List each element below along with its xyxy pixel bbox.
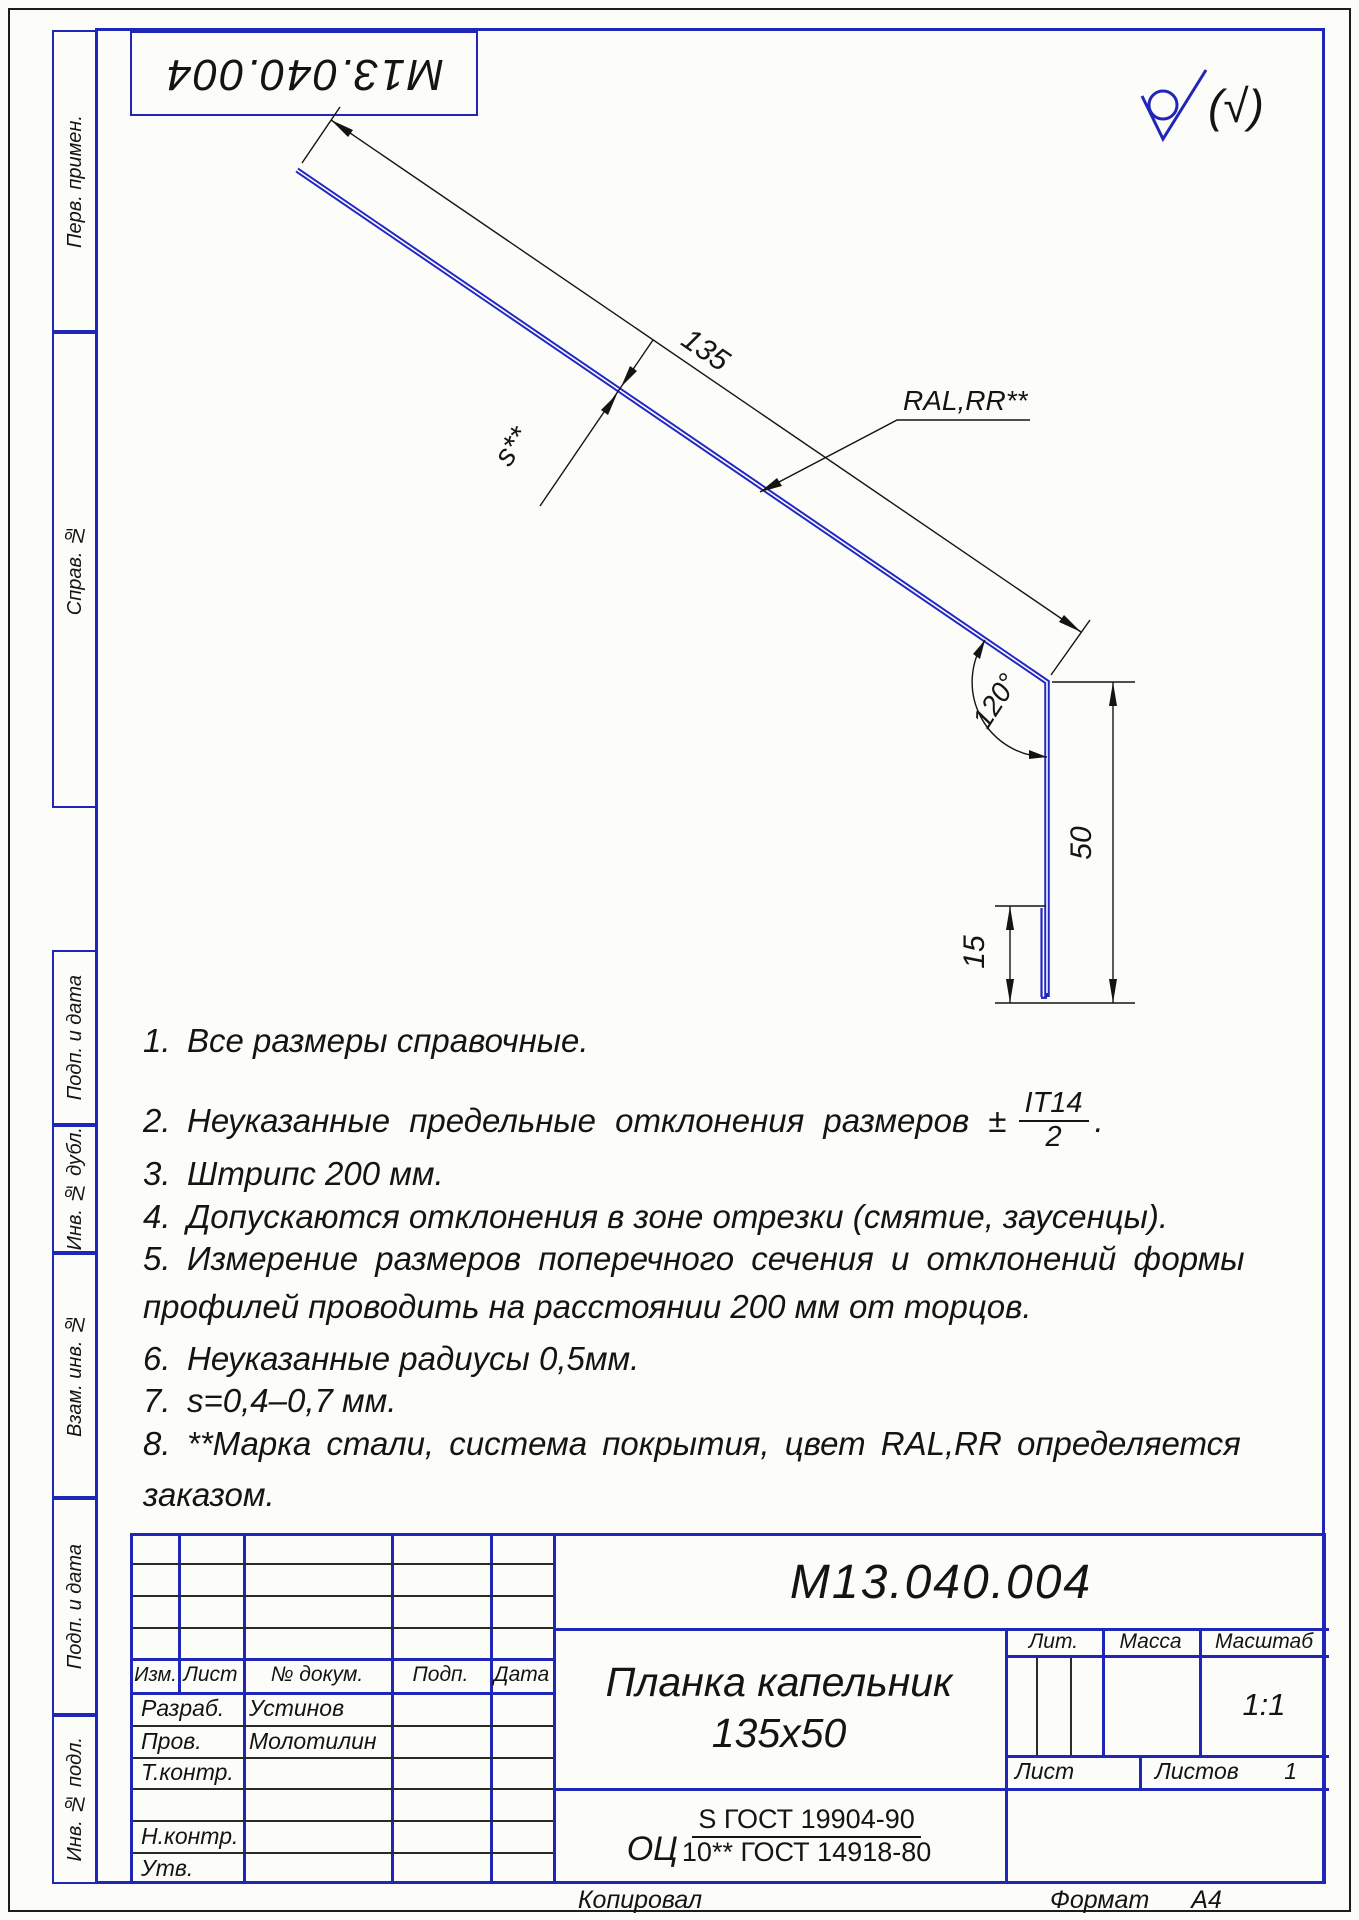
dim-50-label: 50 <box>1065 826 1098 860</box>
material-top: S ГОСТ 19904-90 <box>692 1805 920 1837</box>
note-6: 6.Неуказанные радиусы 0,5мм. <box>143 1340 639 1378</box>
coating-leader <box>760 420 1030 492</box>
part-name-line2: 135х50 <box>712 1710 847 1757</box>
note-2: 2. Неуказанные предельные отклонения раз… <box>143 1088 1104 1154</box>
note-text: профилей проводить на расстоянии 200 мм … <box>143 1288 1032 1325</box>
format-label: Формат <box>1050 1886 1149 1915</box>
note-text: Неуказанные предельные отклонения размер… <box>187 1102 1007 1140</box>
dim-135-label: 135 <box>675 322 735 378</box>
lit-label: Лит. <box>1005 1628 1102 1655</box>
col-dokum: № докум. <box>243 1658 391 1692</box>
arrowhead <box>973 640 985 659</box>
note-number: 8. <box>143 1425 187 1463</box>
row-razrab-label: Разраб. <box>141 1692 241 1725</box>
note-4: 4.Допускаются отклонения в зоне отрезки … <box>143 1198 1168 1236</box>
part-name-line1: Планка капельник <box>606 1659 953 1706</box>
note-1: 1.Все размеры справочные. <box>143 1022 589 1060</box>
list-label: Лист <box>1015 1755 1135 1788</box>
row-tkontr-label: Т.контр. <box>141 1757 241 1788</box>
note-number: 1. <box>143 1022 187 1060</box>
material-box: ОЦ S ГОСТ 19904-90 10** ГОСТ 14918-80 <box>553 1788 1005 1884</box>
title-designation: М13.040.004 <box>553 1536 1329 1628</box>
note-number: 5. <box>143 1240 187 1278</box>
note-text: заказом. <box>143 1476 275 1513</box>
listov-value: 1 <box>1284 1758 1297 1785</box>
razrab-name: Устинов <box>249 1692 389 1725</box>
row-nkontr-label: Н.контр. <box>141 1820 241 1852</box>
note-5-cont: профилей проводить на расстоянии 200 мм … <box>143 1288 1032 1326</box>
note-text: s=0,4–0,7 мм. <box>187 1382 396 1419</box>
fraction-denominator: 2 <box>1045 1122 1061 1153</box>
listov-cell: Листов 1 <box>1139 1755 1329 1788</box>
kopiroval-label: Копировал <box>560 1886 720 1915</box>
dim-15-label: 15 <box>958 935 991 969</box>
material-bottom: 10** ГОСТ 14918-80 <box>682 1838 931 1867</box>
arrowhead <box>1109 979 1117 1003</box>
drawing-sheet: Перв. примен. Справ. № Подп. и дата Инв.… <box>0 0 1359 1920</box>
massa-label: Масса <box>1102 1628 1199 1655</box>
note-8-cont: заказом. <box>143 1476 275 1514</box>
material-fraction: S ГОСТ 19904-90 10** ГОСТ 14918-80 <box>682 1805 931 1866</box>
note-text: Измерение размеров поперечного сечения и… <box>187 1240 1245 1277</box>
format-value: А4 <box>1191 1886 1222 1915</box>
format-box: Формат А4 <box>1050 1886 1222 1915</box>
note-number: 2. <box>143 1102 187 1140</box>
coating-label: RAL,RR** <box>903 385 1029 416</box>
note-number: 7. <box>143 1382 187 1420</box>
title-block: Изм. Лист № докум. Подп. Дата Разраб. Ус… <box>130 1533 1326 1884</box>
note-text: Допускаются отклонения в зоне отрезки (с… <box>187 1198 1168 1235</box>
note-text: Все размеры справочные. <box>187 1022 589 1059</box>
col-list: Лист <box>178 1658 243 1692</box>
col-izm: Изм. <box>133 1658 178 1692</box>
arrowhead <box>1006 979 1014 1003</box>
arrowhead <box>331 120 353 137</box>
tolerance-fraction: IT14 2 <box>1019 1088 1089 1154</box>
arrowhead <box>1059 615 1081 632</box>
listov-label: Листов <box>1155 1758 1239 1785</box>
note-number: 4. <box>143 1198 187 1236</box>
prov-name: Молотилин <box>249 1725 389 1757</box>
note-text: . <box>1095 1102 1104 1140</box>
fraction-numerator: IT14 <box>1019 1088 1089 1122</box>
roughness-note-text: (√) <box>1208 80 1264 132</box>
part-name-box: Планка капельник 135х50 <box>553 1628 1005 1788</box>
dimension-15 <box>995 906 1046 1003</box>
arrowhead <box>1109 682 1117 706</box>
row-utv-label: Утв. <box>141 1852 241 1884</box>
note-3: 3.Штрипс 200 мм. <box>143 1155 444 1193</box>
col-podp: Подп. <box>391 1658 490 1692</box>
note-8: 8.**Марка стали, система покрытия, цвет … <box>143 1425 1241 1463</box>
note-text: Неуказанные радиусы 0,5мм. <box>187 1340 639 1377</box>
scale-value: 1:1 <box>1199 1655 1329 1755</box>
row-prov-label: Пров. <box>141 1725 241 1757</box>
note-text: Штрипс 200 мм. <box>187 1155 444 1192</box>
dimension-thickness <box>540 340 653 506</box>
col-data: Дата <box>490 1658 553 1692</box>
material-prefix: ОЦ <box>627 1830 678 1869</box>
arrowhead <box>621 366 637 387</box>
dim-thickness-label: s** <box>488 420 538 471</box>
note-number: 3. <box>143 1155 187 1193</box>
note-number: 6. <box>143 1340 187 1378</box>
note-7: 7.s=0,4–0,7 мм. <box>143 1382 396 1420</box>
profile-outline <box>297 170 1047 998</box>
masshtab-label: Масштаб <box>1199 1628 1329 1655</box>
note-text: **Марка стали, система покрытия, цвет RA… <box>187 1425 1241 1462</box>
roughness-symbol-icon <box>1142 70 1206 139</box>
note-5: 5.Измерение размеров поперечного сечения… <box>143 1240 1245 1278</box>
arrowhead <box>1006 906 1014 930</box>
